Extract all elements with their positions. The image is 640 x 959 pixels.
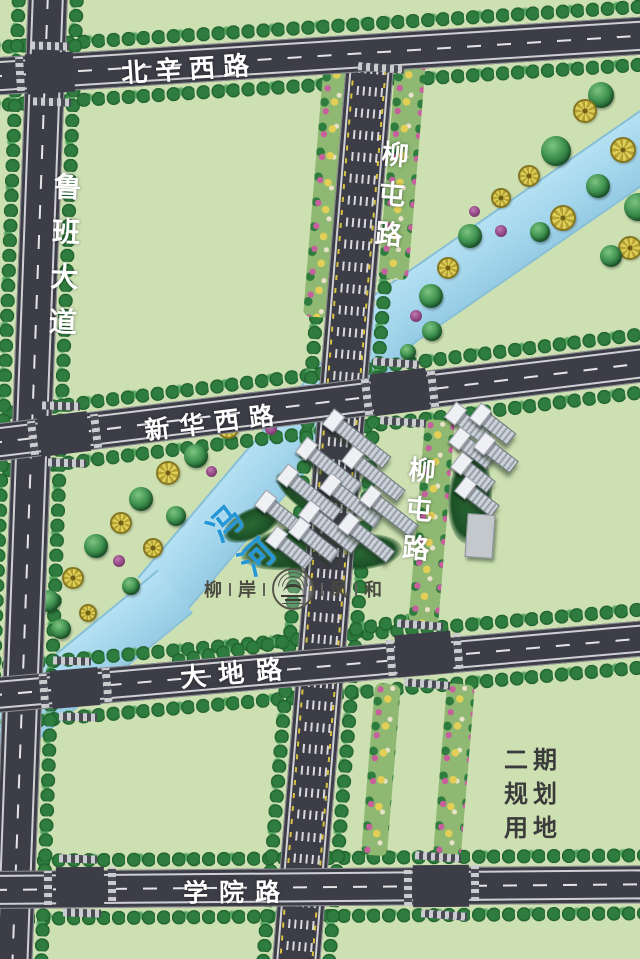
- crosswalk: [59, 712, 97, 721]
- intersection: [49, 667, 100, 709]
- roadside-planting: [433, 683, 475, 857]
- intersection: [25, 52, 75, 95]
- phase2-land-label: 二期 规划 用地: [504, 744, 562, 846]
- crosswalk: [108, 867, 116, 901]
- road-beixin-west: [0, 15, 640, 96]
- crosswalk: [44, 871, 52, 905]
- intersection: [413, 865, 469, 907]
- yellow-tree-icon: [62, 567, 84, 589]
- crosswalk: [404, 678, 451, 690]
- crosswalk: [48, 458, 86, 467]
- yellow-tree-icon: [550, 205, 576, 231]
- road-marking: [26, 0, 64, 959]
- tree-icon: [184, 444, 208, 468]
- logo-separator: [263, 583, 265, 596]
- bridge-ripple-logo-icon: [272, 568, 314, 610]
- yellow-tree-icon: [156, 461, 180, 485]
- logo-char: 和: [364, 576, 382, 602]
- logo-char: 柳: [204, 576, 222, 602]
- lowrise-building: [464, 513, 495, 559]
- tree-icon: [166, 506, 186, 526]
- yellow-tree-icon: [110, 512, 132, 534]
- tree-icon: [586, 174, 610, 198]
- shrub-icon: [410, 310, 422, 322]
- logo-char: 岸: [238, 576, 256, 602]
- crosswalk: [53, 656, 91, 665]
- logo-char: 风: [330, 576, 348, 602]
- crosswalk: [471, 865, 479, 901]
- yellow-tree-icon: [610, 137, 636, 163]
- yellow-tree-icon: [437, 257, 459, 279]
- phase2-line: 二期: [504, 744, 562, 778]
- tree-icon: [122, 577, 140, 595]
- yellow-tree-icon: [79, 604, 97, 622]
- yellow-tree-icon: [143, 538, 163, 558]
- phase2-line: 规划: [504, 778, 562, 812]
- crosswalk: [63, 908, 101, 917]
- crosswalk: [380, 416, 427, 428]
- logo-separator: [355, 583, 357, 596]
- shrub-icon: [113, 555, 125, 567]
- crosswalk: [404, 870, 412, 906]
- site-plan-map: 北辛西路 鲁班大道 柳屯路 柳屯路 新华西路 大地路 学院路 冯河 二期 规划 …: [0, 0, 640, 959]
- tree-icon: [624, 193, 640, 221]
- yellow-tree-icon: [518, 165, 540, 187]
- roadside-planting: [361, 683, 401, 857]
- tree-icon: [419, 284, 443, 308]
- road-label-luban-avenue: 鲁班大道: [40, 171, 87, 352]
- tree-icon: [458, 224, 482, 248]
- tree-icon: [84, 534, 108, 558]
- tree-icon: [530, 222, 550, 242]
- road-luban-avenue: [0, 0, 68, 959]
- intersection: [37, 411, 92, 457]
- shrub-icon: [206, 466, 217, 477]
- road-label-beixin-west: 北辛西路: [120, 45, 258, 90]
- tree-icon: [129, 487, 153, 511]
- project-logo: 柳 岸 风 和: [204, 568, 382, 610]
- logo-separator: [321, 583, 323, 596]
- crosswalk: [31, 41, 69, 50]
- shrub-icon: [495, 225, 507, 237]
- crosswalk: [59, 854, 97, 863]
- intersection: [56, 867, 104, 905]
- crosswalk: [33, 97, 71, 106]
- yellow-tree-icon: [491, 188, 511, 208]
- tree-icon: [422, 321, 442, 341]
- phase2-line: 用地: [504, 812, 562, 846]
- tree-icon: [600, 245, 622, 267]
- tree-icon: [51, 619, 71, 639]
- logo-separator: [229, 583, 231, 596]
- intersection: [370, 368, 431, 417]
- intersection: [394, 631, 453, 678]
- shrub-icon: [469, 206, 480, 217]
- tree-icon: [541, 136, 571, 166]
- yellow-tree-icon: [573, 99, 597, 123]
- tree-icon: [400, 344, 416, 360]
- crosswalk: [42, 401, 80, 410]
- road-label-xueyuan: 学院路: [183, 873, 291, 910]
- crosswalk: [421, 909, 468, 921]
